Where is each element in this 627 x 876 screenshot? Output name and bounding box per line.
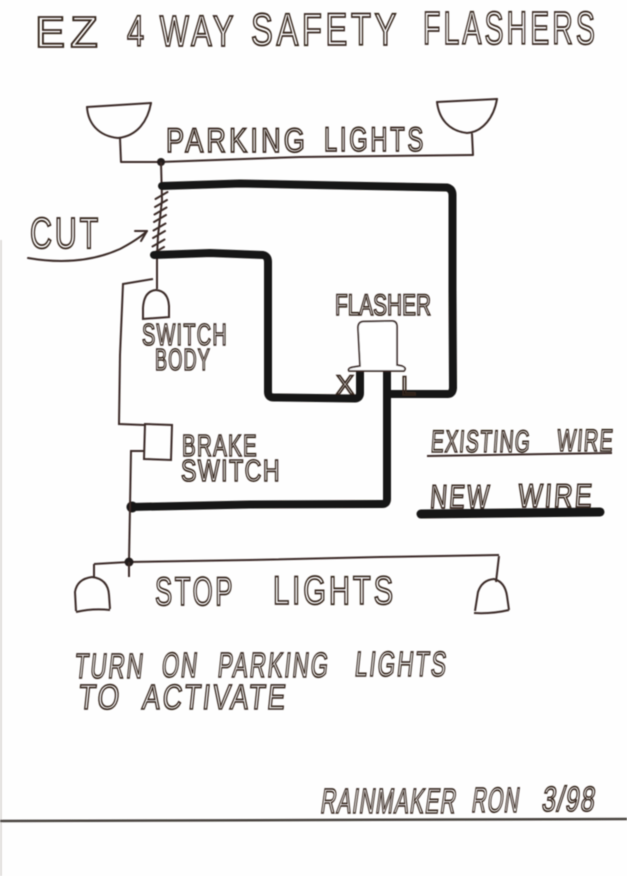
svg-text:FLASHER: FLASHER [335,289,431,322]
svg-text:4 WAY: 4 WAY [127,7,237,56]
svg-text:LIGHTS: LIGHTS [353,645,450,684]
svg-text:RON: RON [470,781,523,820]
svg-text:STOP: STOP [155,570,235,614]
svg-text:L: L [401,371,416,401]
svg-text:SWITCH: SWITCH [181,453,281,488]
svg-text:LIGHTS: LIGHTS [324,121,426,159]
svg-text:TO: TO [77,678,124,717]
svg-text:FLASHERS: FLASHERS [423,2,598,54]
svg-text:BODY: BODY [155,342,211,377]
svg-text:EZ: EZ [35,8,103,57]
svg-text:SAFETY: SAFETY [251,4,400,55]
svg-text:3/98: 3/98 [540,780,599,819]
svg-text:X: X [336,370,354,400]
svg-text:CUT: CUT [30,209,101,258]
svg-text:LIGHTS: LIGHTS [273,569,396,613]
svg-text:PARKING: PARKING [166,122,308,160]
svg-text:ACTIVATE: ACTIVATE [141,678,290,717]
svg-text:RAINMAKER: RAINMAKER [319,782,460,821]
